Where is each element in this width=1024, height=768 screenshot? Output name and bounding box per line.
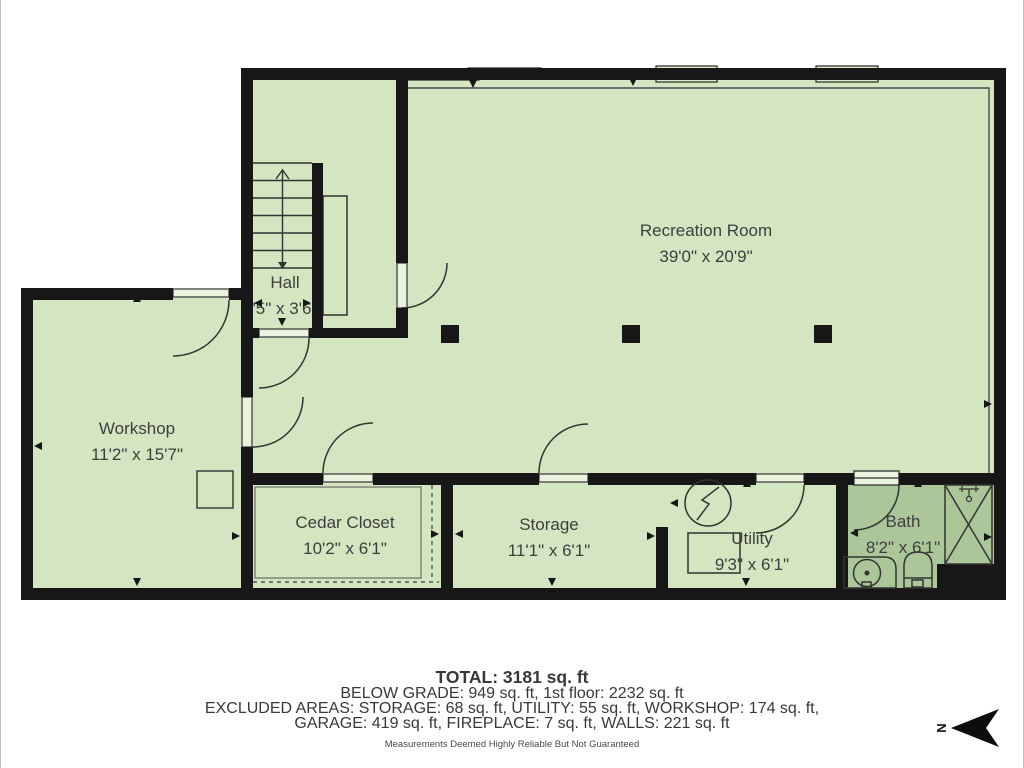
- wall-bath-top: [846, 473, 854, 485]
- structure-layer: N: [1, 0, 1024, 768]
- wall-workshop-top: [229, 288, 253, 300]
- room-dims: 8'2" x 6'1": [866, 535, 940, 561]
- wall-divider: [253, 473, 323, 485]
- window: [656, 66, 717, 82]
- shower-head-icon: [959, 486, 979, 502]
- wall-hall-bottom: [241, 328, 259, 338]
- room-dims: '5" x 3'6": [253, 296, 318, 322]
- workshop-side-door-arc: [253, 397, 303, 447]
- cedar-door-leaf: [323, 474, 373, 482]
- room-dims: 11'1" x 6'1": [508, 538, 591, 564]
- recreation-door-leaf: [397, 263, 407, 308]
- hall-door-arc: [259, 338, 309, 388]
- wall-hall-bottom: [309, 328, 408, 338]
- room-label-bath: Bath 8'2" x 6'1": [866, 509, 940, 561]
- wall-right: [994, 68, 1006, 600]
- wall-cedar-storage: [441, 473, 453, 600]
- room-name: Cedar Closet: [295, 510, 394, 536]
- window: [816, 66, 878, 82]
- room-dims: 11'2" x 15'7": [91, 442, 183, 468]
- summary-line: GARAGE: 419 sq. ft, FIREPLACE: 7 sq. ft,…: [1, 717, 1023, 732]
- recreation-door-arc: [402, 263, 447, 308]
- faucet: [862, 582, 871, 588]
- cedar-door-arc: [323, 423, 373, 473]
- room-label-recreation: Recreation Room 39'0" x 20'9": [640, 218, 772, 270]
- wall-workshop-west: [21, 288, 33, 600]
- room-label-storage: Storage 11'1" x 6'1": [508, 512, 591, 564]
- area-summary: TOTAL: 3181 sq. ft BELOW GRADE: 949 sq. …: [1, 667, 1023, 751]
- workshop-fixture: [197, 471, 233, 508]
- wall-fill-shower-corner: [937, 564, 1006, 600]
- room-dims: 9'3" x 6'1": [715, 552, 789, 578]
- room-label-hall: Hall '5" x 3'6": [253, 270, 318, 322]
- total-area: TOTAL: 3181 sq. ft: [1, 667, 1023, 687]
- wall-recreation-west: [396, 308, 408, 333]
- lightning-icon: [697, 487, 719, 520]
- floor-recreation-room: [402, 74, 1000, 479]
- room-name: Utility: [715, 526, 789, 552]
- support-post: [441, 325, 459, 343]
- windows: [408, 66, 899, 485]
- sliding-door-panel: [408, 74, 479, 80]
- sink-icon: [854, 560, 881, 587]
- workshop-door-arc: [173, 300, 229, 356]
- sliding-door-panel: [468, 68, 541, 74]
- stairs: [253, 163, 312, 269]
- wall-top: [241, 68, 1006, 80]
- workshop-side-door-leaf: [242, 397, 252, 447]
- room-name: Hall: [253, 270, 318, 296]
- wall-divider: [804, 473, 846, 485]
- room-name: Storage: [508, 512, 591, 538]
- room-dims: 10'2" x 6'1": [295, 536, 394, 562]
- hall-door-leaf: [259, 329, 309, 337]
- vanity: [844, 557, 896, 588]
- shower: [945, 485, 992, 564]
- floor-plan: Recreation Room 39'0" x 20'9" Hall '5" x…: [0, 0, 1024, 768]
- bath-door-leaf: [854, 474, 899, 482]
- room-label-workshop: Workshop 11'2" x 15'7": [91, 416, 183, 468]
- wall-storage-utility: [656, 527, 668, 600]
- dimension-arrows: [34, 78, 992, 586]
- wall-recreation-west: [396, 80, 408, 263]
- wall-west-upper: [241, 68, 253, 397]
- room-name: Recreation Room: [640, 218, 772, 244]
- bath-window: [854, 471, 899, 485]
- wall-workshop-top: [21, 288, 173, 300]
- wall-divider: [373, 473, 539, 485]
- wall-west-lower: [241, 447, 253, 588]
- recreation-inset-line: [408, 88, 989, 473]
- disclaimer: Measurements Deemed Highly Reliable But …: [1, 739, 1023, 751]
- support-post: [814, 325, 832, 343]
- support-post: [622, 325, 640, 343]
- workshop-door-leaf: [173, 289, 229, 297]
- fireplace: [323, 196, 347, 315]
- utility-door-leaf: [756, 474, 804, 482]
- room-name: Workshop: [91, 416, 183, 442]
- room-label-utility: Utility 9'3" x 6'1": [715, 526, 789, 578]
- room-name: Bath: [866, 509, 940, 535]
- storage-door-leaf: [539, 474, 588, 482]
- stair-up-arrow: [276, 170, 289, 179]
- wall-bath-top: [899, 473, 994, 485]
- electrical-panel-icon: [685, 480, 731, 526]
- floor-fills: [1, 0, 1024, 768]
- room-dims: 39'0" x 20'9": [640, 244, 772, 270]
- storage-door-arc: [539, 424, 588, 473]
- room-label-cedar-closet: Cedar Closet 10'2" x 6'1": [295, 510, 394, 562]
- wall-divider: [588, 473, 756, 485]
- wall-bottom: [21, 588, 1006, 600]
- wall-utility-bath: [836, 473, 848, 600]
